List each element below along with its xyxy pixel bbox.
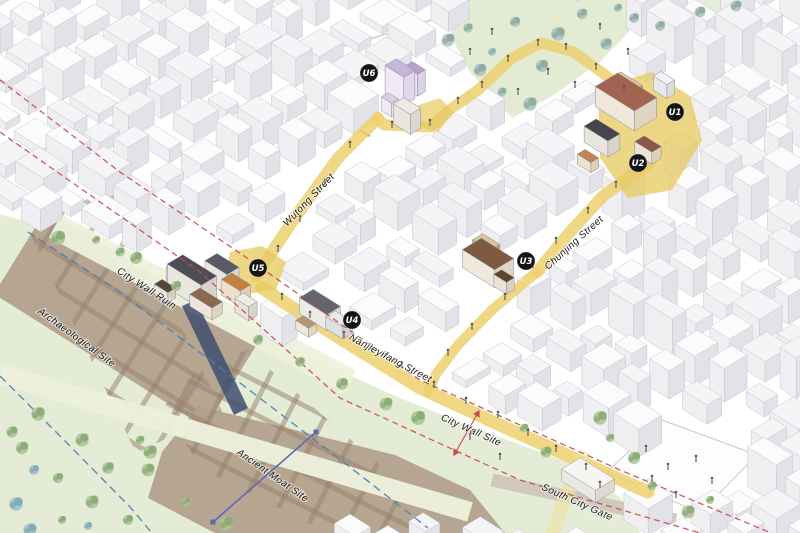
marker-text: U5 [252, 264, 265, 274]
marker-u5[interactable]: U5 [249, 259, 267, 277]
street-label-nanjieyifang: Nanjieyifang Street [347, 332, 434, 385]
marker-text: U6 [363, 69, 376, 79]
marker-text: U1 [669, 108, 682, 118]
axonometric-site-map: Wutong Street Chunjing Street Nanjieyifa… [0, 0, 800, 533]
site-map-canvas: Wutong Street Chunjing Street Nanjieyifa… [0, 0, 800, 533]
marker-text: U2 [632, 159, 645, 169]
marker-text: U4 [346, 316, 359, 326]
marker-text: U3 [520, 257, 533, 267]
marker-u1[interactable]: U1 [666, 103, 684, 121]
marker-u3[interactable]: U3 [517, 252, 535, 270]
marker-u4[interactable]: U4 [343, 311, 361, 329]
marker-u6[interactable]: U6 [360, 64, 378, 82]
marker-u2[interactable]: U2 [629, 154, 647, 172]
